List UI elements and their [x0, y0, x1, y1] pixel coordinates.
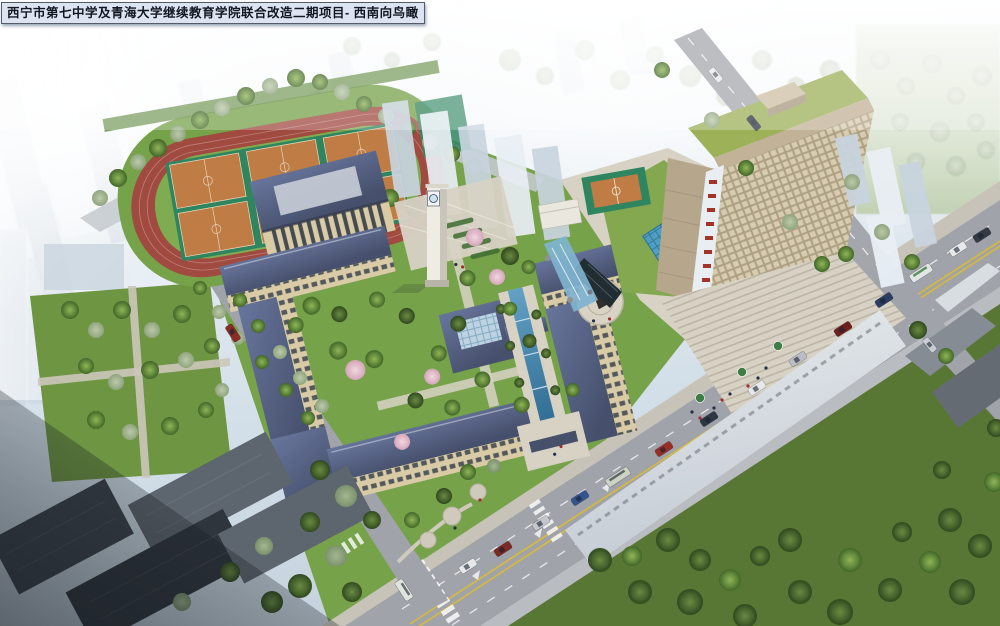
tree — [315, 399, 329, 413]
tree — [782, 214, 798, 230]
tree — [628, 580, 652, 604]
tree — [838, 246, 854, 262]
tree — [436, 488, 452, 504]
tree — [335, 485, 357, 507]
tree — [88, 322, 104, 338]
tree — [215, 383, 229, 397]
tree — [892, 522, 912, 542]
tree — [273, 345, 287, 359]
tree — [204, 338, 220, 354]
tree — [919, 551, 941, 573]
tree — [844, 174, 860, 190]
tree — [108, 374, 124, 390]
tree — [909, 321, 927, 339]
tree — [92, 190, 108, 206]
tree — [300, 512, 320, 532]
tree — [161, 417, 179, 435]
tree — [933, 461, 951, 479]
tree — [968, 534, 992, 558]
tree — [778, 528, 802, 552]
tree — [874, 224, 890, 240]
tree — [814, 256, 830, 272]
tree — [838, 548, 862, 572]
tree — [109, 169, 127, 187]
aerial-rendering — [0, 0, 1000, 626]
drawing-title: 西宁市第七中学及青海大学继续教育学院联合改造二期项目- 西南向鸟瞰 — [1, 2, 425, 24]
bg-building — [44, 244, 124, 290]
tree — [363, 511, 381, 529]
tree — [198, 402, 214, 418]
tree — [750, 546, 770, 566]
tree — [460, 464, 476, 480]
tree — [78, 358, 94, 374]
drawing-title-text: 西宁市第七中学及青海大学继续教育学院联合改造二期项目- 西南向鸟瞰 — [7, 6, 419, 20]
tree — [173, 305, 191, 323]
tree — [144, 322, 160, 338]
tree — [279, 383, 293, 397]
tree — [938, 508, 962, 532]
tree — [255, 355, 269, 369]
clock-tower-side — [440, 189, 447, 280]
tree — [938, 348, 954, 364]
tree — [325, 545, 347, 567]
seating-pad — [470, 484, 486, 500]
tree — [738, 160, 754, 176]
tree — [310, 460, 330, 480]
tree — [949, 579, 975, 605]
tree — [501, 247, 519, 265]
tree — [622, 546, 642, 566]
tree — [487, 459, 501, 473]
tree — [827, 599, 853, 625]
tree — [342, 582, 362, 602]
clock-tower-cap — [426, 184, 449, 188]
tree — [677, 589, 703, 615]
tree — [404, 512, 420, 528]
seating-pad — [443, 507, 461, 525]
tree — [113, 301, 131, 319]
tree — [719, 569, 741, 591]
tree — [788, 580, 812, 604]
tree — [878, 578, 902, 602]
tree — [904, 254, 920, 270]
tree — [149, 139, 167, 157]
tree — [61, 301, 79, 319]
tree — [87, 411, 105, 429]
rendering-canvas: 西宁市第七中学及青海大学继续教育学院联合改造二期项目- 西南向鸟瞰 — [0, 0, 1000, 626]
tree — [193, 281, 207, 295]
tree — [233, 293, 247, 307]
tree — [255, 537, 273, 555]
tree — [293, 371, 307, 385]
tree — [656, 528, 680, 552]
tree — [251, 319, 265, 333]
tree — [178, 352, 194, 368]
tree — [588, 548, 612, 572]
clock-face — [430, 195, 438, 203]
seating-pad — [420, 532, 436, 548]
tree — [689, 549, 711, 571]
tree — [141, 361, 159, 379]
tree — [122, 424, 138, 440]
tree — [212, 305, 226, 319]
tree — [130, 154, 146, 170]
tree — [301, 411, 315, 425]
clock-tower-base — [425, 280, 449, 287]
